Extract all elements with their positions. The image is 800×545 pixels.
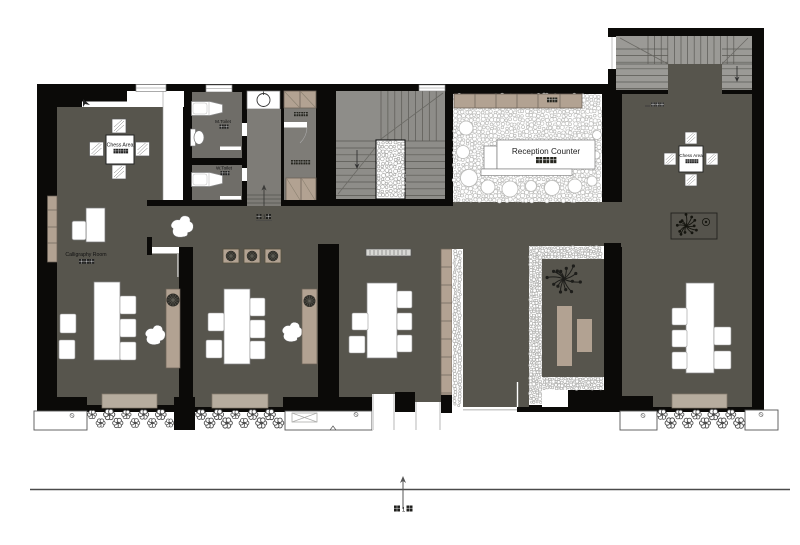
svg-text:Reception Counter: Reception Counter: [512, 147, 581, 156]
svg-text:Chess Area: Chess Area: [679, 153, 703, 158]
svg-text:Calligraphy Room: Calligraphy Room: [65, 252, 106, 258]
svg-text:1: 1: [263, 215, 266, 221]
svg-text:W.Toilet: W.Toilet: [216, 166, 233, 171]
svg-text:M.Toilet: M.Toilet: [215, 119, 232, 124]
svg-text:Chess Area: Chess Area: [107, 143, 134, 149]
